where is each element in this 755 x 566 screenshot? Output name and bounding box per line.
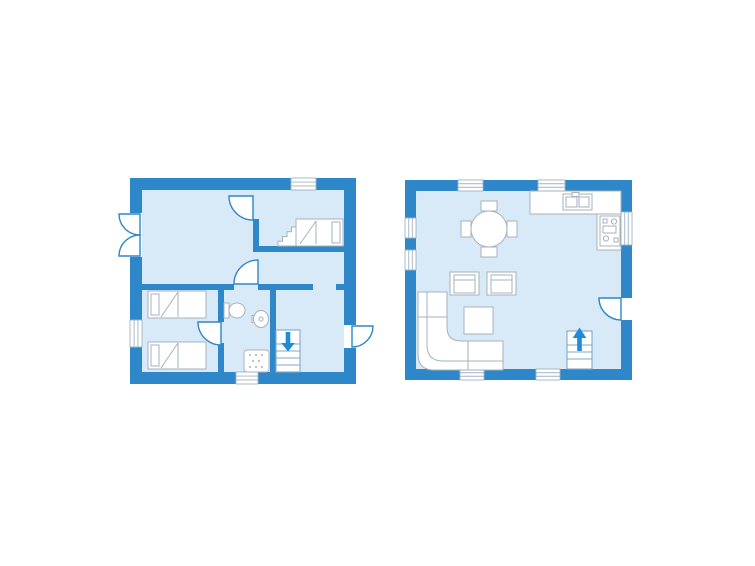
interior-wall	[218, 290, 224, 322]
shower	[244, 350, 269, 372]
window	[621, 212, 632, 245]
kitchen-sink	[563, 193, 592, 211]
stove	[600, 216, 620, 246]
french-door-leaf	[119, 214, 140, 235]
interior-wall	[142, 284, 234, 290]
interior-wall	[270, 290, 276, 372]
toilet	[224, 303, 245, 318]
floorplan-svg	[0, 0, 755, 566]
staircase-up	[567, 328, 592, 370]
french-door-leaf	[119, 235, 140, 256]
window	[405, 250, 416, 270]
window	[536, 369, 560, 380]
window	[130, 320, 142, 347]
interior-wall	[218, 343, 224, 372]
window	[405, 218, 416, 238]
single-bed	[148, 342, 206, 369]
interior-wall	[336, 284, 344, 290]
floorplan-canvas	[0, 0, 755, 566]
single-bed	[296, 219, 343, 246]
entrance-door-swing	[352, 326, 373, 347]
door-opening	[621, 298, 632, 320]
window	[538, 180, 565, 191]
window	[236, 372, 258, 384]
armchair	[487, 272, 516, 295]
interior-wall	[258, 284, 313, 290]
ground-floor-plan	[405, 180, 632, 380]
interior-wall	[259, 246, 344, 252]
upper-floor-plan	[119, 178, 373, 384]
single-bed	[148, 291, 206, 318]
interior-wall	[253, 219, 259, 252]
window	[460, 369, 484, 380]
window	[291, 178, 316, 190]
coffee-table	[464, 307, 493, 334]
window	[458, 180, 483, 191]
armchair	[450, 272, 479, 295]
staircase-down	[276, 330, 300, 372]
